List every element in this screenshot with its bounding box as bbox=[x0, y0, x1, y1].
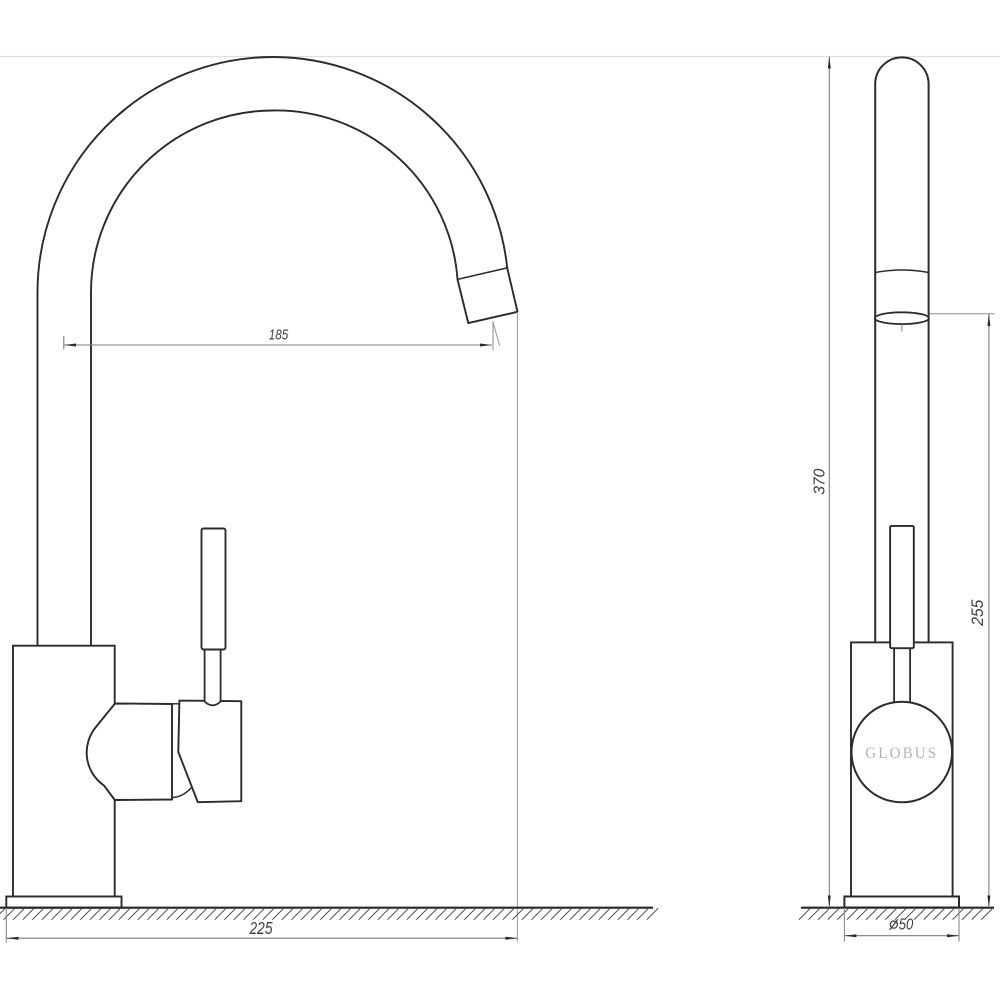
svg-text:225: 225 bbox=[249, 918, 273, 938]
svg-text:50: 50 bbox=[899, 916, 914, 933]
svg-text:370: 370 bbox=[812, 469, 829, 495]
svg-text:185: 185 bbox=[269, 327, 289, 344]
svg-text:GLOBUS: GLOBUS bbox=[865, 745, 938, 762]
svg-text:255: 255 bbox=[969, 599, 987, 627]
